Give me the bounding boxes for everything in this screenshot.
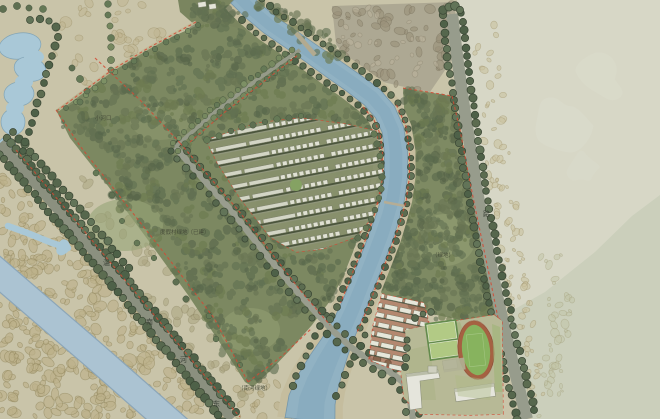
svg-text:度假村绿地（已建）: 度假村绿地（已建）	[160, 228, 210, 236]
svg-text:（绿地）: （绿地）	[432, 251, 454, 259]
svg-text:南: 南	[146, 317, 153, 326]
svg-text:温: 温	[103, 258, 110, 267]
svg-text:小河口: 小河口	[95, 114, 112, 122]
svg-text:路: 路	[483, 209, 490, 218]
svg-text:（南河绿地）: （南河绿地）	[238, 384, 271, 392]
svg-text:河: 河	[180, 356, 187, 364]
svg-text:东: 东	[213, 399, 220, 408]
